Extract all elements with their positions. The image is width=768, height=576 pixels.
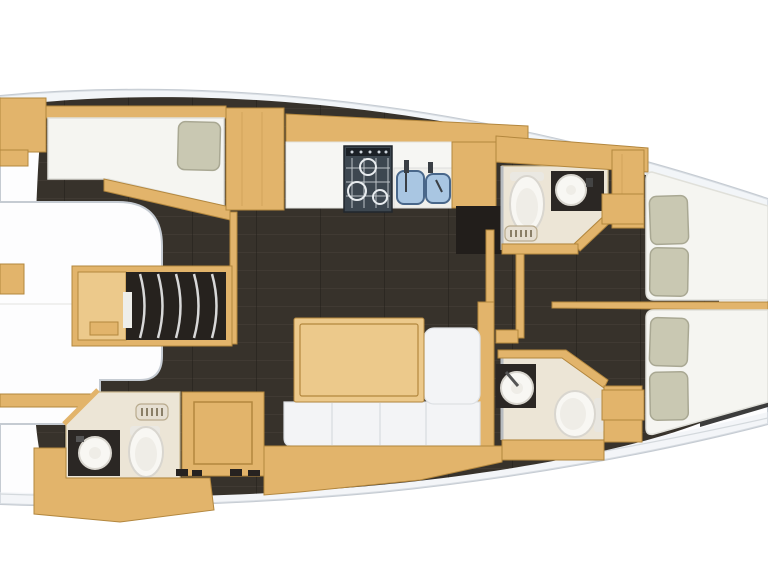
stove-knob — [369, 151, 372, 154]
aft-cabin-stbd-cabinet — [602, 194, 644, 224]
berth-pillow — [649, 195, 689, 244]
wardrobe-tray — [90, 322, 118, 335]
sill-fitting — [230, 469, 242, 476]
wardrobe — [72, 266, 232, 346]
faucet-icon — [404, 160, 409, 173]
sill-fitting — [248, 470, 260, 476]
galley-sink-right — [426, 174, 450, 203]
stove-knob — [351, 151, 354, 154]
sink-drain — [566, 185, 576, 195]
sill-fitting — [192, 470, 202, 476]
berth-pillow — [650, 248, 689, 297]
corridor-door-frame — [516, 250, 524, 338]
galley-sink-left — [397, 171, 424, 204]
vent-bar — [146, 408, 148, 416]
stove-knob — [385, 151, 388, 154]
forward-bulkhead — [226, 108, 284, 210]
sill-fitting — [176, 469, 188, 476]
vent-bar — [161, 408, 163, 416]
aft-centerline-bulkhead — [552, 302, 768, 310]
salon-table — [294, 318, 424, 402]
vent-bar — [156, 408, 158, 416]
toilet-seat — [516, 188, 538, 226]
floorplan-canvas — [0, 0, 768, 576]
salon-settee-corner — [424, 328, 480, 404]
vent-bar — [515, 230, 517, 237]
vent-bar — [525, 230, 527, 237]
vent-bar — [141, 408, 143, 416]
faucet-icon — [586, 178, 593, 187]
corridor-step — [496, 330, 518, 343]
yacht-floorplan-image — [0, 0, 768, 576]
forward-cabinet-left-lower — [0, 150, 28, 166]
stove-knob — [360, 151, 363, 154]
aft-head-port-sill — [502, 440, 604, 460]
vent-bar — [520, 230, 522, 237]
aft-cabin-port-cabinet — [602, 390, 644, 420]
salon-settee — [284, 402, 480, 446]
vent-bar — [510, 230, 512, 237]
galley-counter-aft — [452, 142, 496, 208]
berth-pillow — [650, 372, 689, 421]
vent-bar — [530, 230, 532, 237]
vent-bar — [151, 408, 153, 416]
forward-head — [64, 390, 180, 478]
salon — [264, 318, 502, 495]
faucet-icon — [76, 436, 84, 442]
bow-shelf-small — [0, 264, 24, 294]
berth-pillow — [649, 317, 689, 366]
wardrobe-rail-end — [123, 292, 132, 328]
stove-knob — [378, 151, 381, 154]
head-door-sill — [502, 244, 578, 254]
galley-locker-dark — [456, 206, 502, 254]
berth-head-board — [46, 106, 226, 118]
faucet-icon — [428, 162, 433, 173]
forward-head-sink-drain — [89, 447, 101, 459]
forward-cabinet-left — [0, 98, 46, 152]
berth-pillow — [177, 121, 220, 170]
toilet-seat — [560, 398, 586, 430]
toilet-seat — [135, 437, 157, 471]
